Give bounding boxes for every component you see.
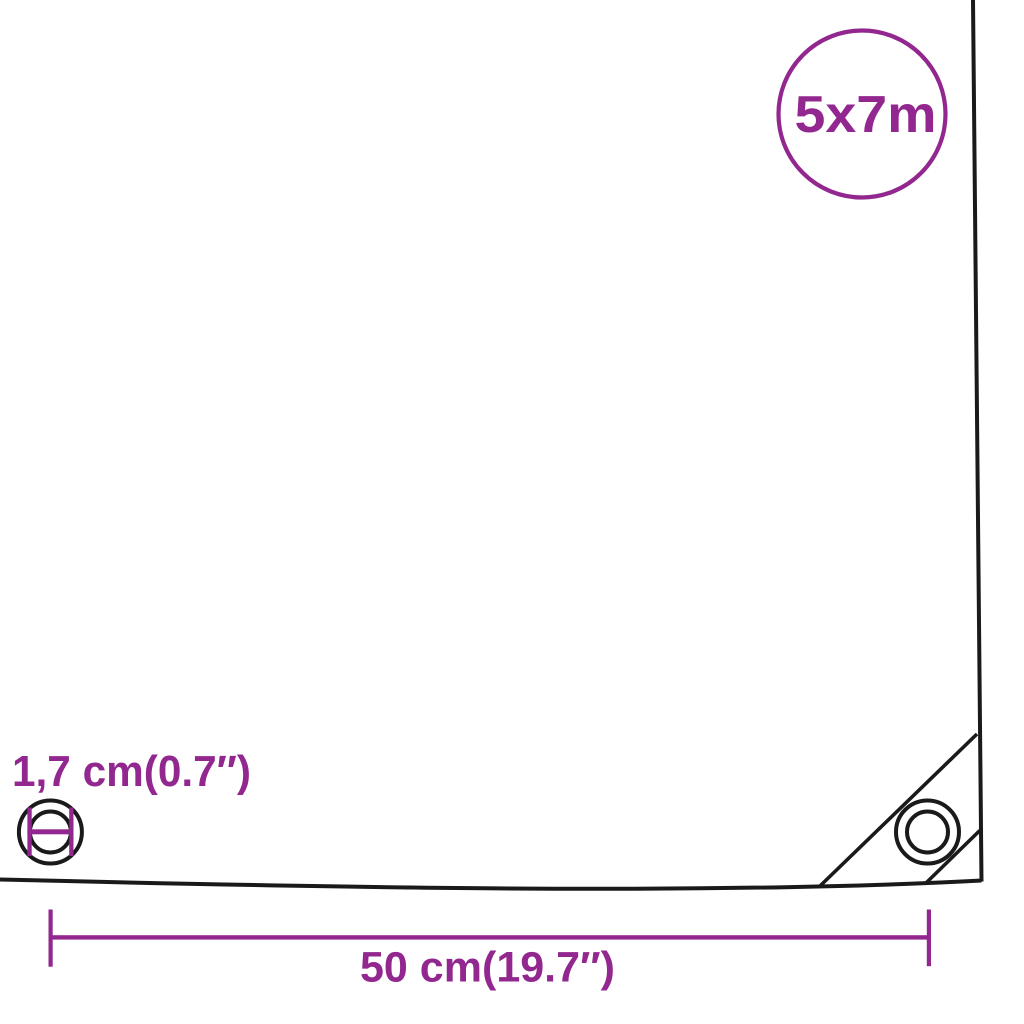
svg-text:5x7m: 5x7m [795, 86, 937, 144]
svg-text:50 cm(19.7″): 50 cm(19.7″) [360, 944, 615, 991]
svg-text:1,7 cm(0.7″): 1,7 cm(0.7″) [12, 748, 251, 796]
